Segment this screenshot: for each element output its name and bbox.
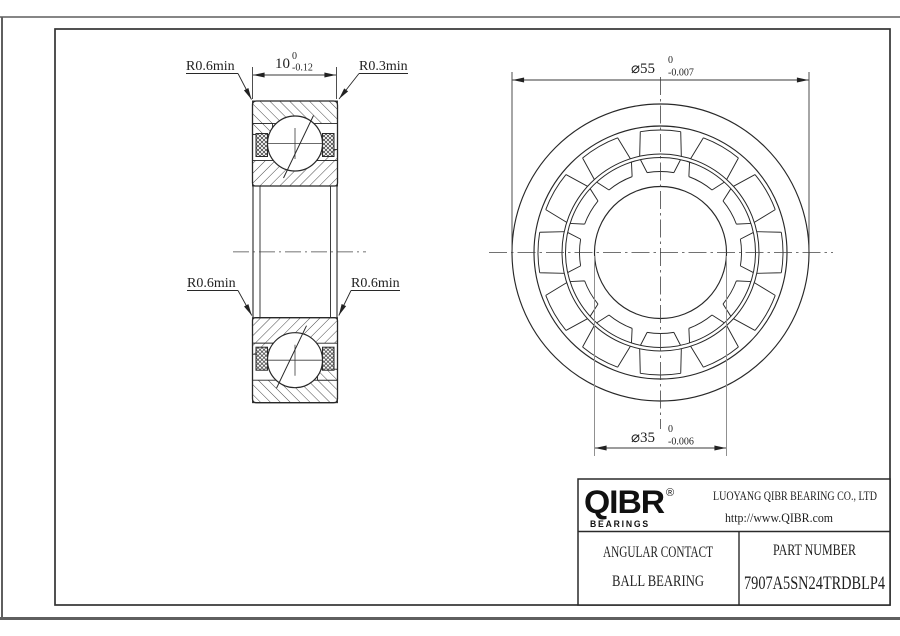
od-dim-value: ⌀55: [631, 61, 655, 77]
registered-mark: ®: [666, 487, 674, 499]
bearing-drawing-canvas: 10 0 -0.12 R0.6min R0.3min R0.6min R0.6m…: [0, 0, 900, 636]
cage-pocket: [723, 281, 775, 331]
cage-pocket: [723, 175, 775, 225]
width-dim-tol-lower: -0.12: [292, 63, 313, 74]
company-website: http://www.QIBR.com: [725, 510, 833, 525]
part-number-value: 7907A5SN24TRDBLP4: [744, 573, 885, 594]
r06-bottom-left-label: R0.6min: [187, 276, 236, 291]
company-name: LUOYANG QIBR BEARING CO., LTD: [713, 488, 877, 503]
cage-pocket: [583, 315, 633, 367]
bore-dim-value: ⌀35: [631, 430, 655, 446]
r03-top-right-label: R0.3min: [359, 59, 408, 74]
title-block: QIBR ® BEARINGS LUOYANG QIBR BEARING CO.…: [578, 479, 890, 605]
bore-dim-tol-lower: -0.006: [668, 437, 694, 448]
od-dim-tol-upper: 0: [668, 55, 673, 66]
cage-pocket: [583, 138, 633, 190]
logo-subtext: BEARINGS: [590, 519, 650, 530]
part-number-label: PART NUMBER: [773, 542, 857, 559]
product-type-line1: ANGULAR CONTACT: [603, 544, 713, 561]
od-dim-tol-lower: -0.007: [668, 68, 694, 79]
r06-bottom-right-label: R0.6min: [351, 276, 400, 291]
cage-pocket: [689, 315, 739, 367]
logo-text: QIBR: [584, 484, 665, 520]
drawing-sheet: 10 0 -0.12 R0.6min R0.3min R0.6min R0.6m…: [0, 0, 900, 636]
width-dim-value: 10: [275, 56, 290, 72]
radius-labels: R0.6min R0.3min R0.6min R0.6min: [186, 59, 408, 316]
r06-top-left-label: R0.6min: [186, 59, 235, 74]
product-type-line2: BALL BEARING: [612, 573, 704, 590]
width-dim-tol-upper: 0: [292, 51, 297, 62]
cage-pocket: [689, 138, 739, 190]
section-view: 10 0 -0.12 R0.6min R0.3min R0.6min R0.6m…: [186, 51, 408, 403]
front-view: ⌀55 0 -0.007 ⌀35 0 -0.006: [489, 55, 833, 456]
bore-dim-tol-upper: 0: [668, 424, 673, 435]
cage-pocket: [546, 175, 598, 225]
cage-pocket: [546, 281, 598, 331]
